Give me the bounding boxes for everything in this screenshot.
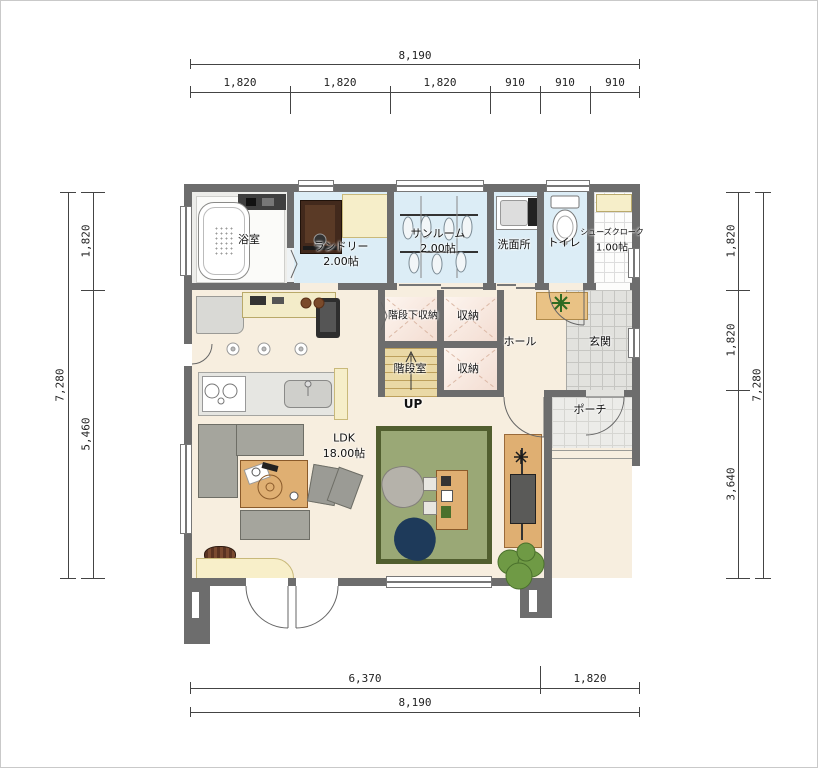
door-gap-kitchen-side <box>184 344 192 366</box>
window-shoecloset <box>628 248 640 278</box>
dimension-tick <box>290 86 291 114</box>
window-laundry <box>298 180 334 192</box>
wall-washroom-toilet <box>537 184 544 283</box>
dimension-tick <box>60 192 76 193</box>
sofa-bench <box>240 510 310 540</box>
tv <box>510 474 536 524</box>
dim-right-seg-2: 1,820 <box>725 308 738 372</box>
room-label-hall: ホール <box>504 333 537 349</box>
door-gap-laundry <box>300 283 338 290</box>
door-gap-terrace-a <box>246 578 288 586</box>
room-label-stair-room: 階段室 <box>394 360 427 376</box>
bathtub-drain-dots <box>214 226 234 256</box>
window-toilet <box>546 180 590 192</box>
wall-hall-bottom <box>437 390 504 397</box>
dimension-tick <box>190 707 191 717</box>
dimension-tick <box>726 390 750 391</box>
dim-line-bottom-segments <box>190 688 640 689</box>
stool <box>423 477 437 491</box>
dim-line-top-segments <box>190 92 640 93</box>
wall-sunroom-washroom <box>487 184 494 283</box>
door-gap-entrance <box>586 390 624 397</box>
dimension-tick <box>81 192 105 193</box>
island-end-panel <box>334 368 348 420</box>
dim-top-seg-6: 910 <box>605 76 625 89</box>
vanity-cabinet <box>528 198 537 226</box>
door-gap-washroom <box>496 283 535 290</box>
room-label-ldk: LDK <box>333 432 355 445</box>
room-size-ldk: 18.00帖 <box>323 445 366 461</box>
dim-left-seg-2: 5,460 <box>80 402 93 466</box>
stool <box>423 501 437 515</box>
dim-line-left-segments <box>93 192 94 578</box>
desk-item <box>441 476 451 486</box>
dimension-tick <box>639 707 640 717</box>
door-gap-shoecloset <box>596 283 630 290</box>
door-gap-terrace-b <box>296 578 338 586</box>
room-label-washroom: 洗面所 <box>498 236 531 252</box>
door-gap-bathroom <box>287 248 294 282</box>
dimension-tick <box>639 86 640 98</box>
dining-table <box>240 460 308 508</box>
window-ldk-west <box>180 444 192 534</box>
dim-top-seg-1: 1,820 <box>223 76 256 89</box>
dimension-tick <box>81 578 105 579</box>
dim-top-total: 8,190 <box>398 49 431 62</box>
refrigerator-inner <box>320 302 336 332</box>
dim-left-total: 7,280 <box>54 353 67 417</box>
window-ldk-south-sliding <box>386 576 492 588</box>
kitchen-cabinet <box>196 296 244 334</box>
wall-bottom <box>184 578 552 586</box>
dimension-tick <box>540 86 541 114</box>
dimension-tick <box>81 290 105 291</box>
room-label-entrance: 玄関 <box>589 333 611 349</box>
dimension-tick <box>590 86 591 114</box>
room-label-storage-lower: 収納 <box>457 360 479 376</box>
dim-top-seg-5: 910 <box>555 76 575 89</box>
room-label-laundry: ランドリー <box>314 238 369 254</box>
sofa-top <box>236 424 304 456</box>
dim-right-seg-1: 1,820 <box>725 209 738 273</box>
wall-ldk-east <box>544 390 552 586</box>
dim-line-bottom-total <box>190 712 640 713</box>
sw-corner-slot <box>192 592 199 618</box>
dimension-tick <box>755 578 771 579</box>
dimension-tick <box>540 666 541 694</box>
wall-stairblock-horizontal <box>378 341 504 348</box>
room-label-porch: ポーチ <box>574 401 607 417</box>
hall-cabinet <box>536 292 588 320</box>
door-gap-toilet <box>549 283 583 290</box>
laundry-counter <box>342 194 388 238</box>
window-sunroom <box>396 180 484 192</box>
porch-step-line <box>552 450 640 451</box>
dim-top-seg-3: 1,820 <box>423 76 456 89</box>
dim-bottom-total: 8,190 <box>398 696 431 709</box>
wall-entrance-porch <box>548 390 586 397</box>
stairs-up-label: UP <box>404 397 423 411</box>
room-label-bathroom: 浴室 <box>238 231 260 247</box>
sofa-left <box>198 424 238 498</box>
dimension-tick <box>726 290 750 291</box>
room-label-toilet: トイレ <box>548 234 581 250</box>
bathroom-counter-item <box>262 198 274 206</box>
vanity-basin <box>500 200 528 226</box>
room-label-understair-storage: 階段下収納 <box>388 307 438 322</box>
window-entrance <box>628 328 640 358</box>
dim-right-total: 7,280 <box>751 353 764 417</box>
dimension-tick <box>190 682 191 694</box>
room-label-shoe-closet: シューズクローク <box>580 227 644 238</box>
kitchen-appliance <box>272 297 284 304</box>
dimension-tick <box>639 59 640 69</box>
dimension-tick <box>390 86 391 114</box>
dim-bottom-seg-1: 6,370 <box>348 672 381 685</box>
dimension-tick <box>755 192 771 193</box>
wall-entrance-porch-stub <box>624 390 640 397</box>
dim-left-seg-1: 1,820 <box>80 209 93 273</box>
dimension-tick <box>190 86 191 98</box>
room-label-storage-upper: 収納 <box>457 307 479 323</box>
dim-line-right-segments <box>738 192 739 578</box>
dim-line-top-total <box>190 64 640 65</box>
kitchen-appliance <box>250 296 266 305</box>
dim-right-seg-3: 3,640 <box>725 452 738 516</box>
dimension-tick <box>726 578 750 579</box>
kitchen-sink <box>284 380 332 408</box>
room-size-shoe-closet: 1.00帖 <box>596 239 628 254</box>
dim-top-seg-4: 910 <box>505 76 525 89</box>
dimension-tick <box>639 682 640 694</box>
dimension-tick <box>726 192 750 193</box>
window-bathroom <box>180 206 192 276</box>
shoe-shelf <box>596 194 632 212</box>
wall-laundry-sunroom <box>387 184 394 283</box>
room-size-sunroom: 2.00帖 <box>420 240 456 256</box>
room-label-sunroom: サンルーム <box>411 225 466 241</box>
desk-item <box>441 506 451 518</box>
dimension-tick <box>60 578 76 579</box>
stove <box>202 376 246 412</box>
door-gap-sunroom <box>397 283 483 290</box>
room-size-laundry: 2.00帖 <box>323 253 359 269</box>
dim-bottom-seg-2: 1,820 <box>573 672 606 685</box>
bathroom-counter-item <box>246 198 256 206</box>
dim-line-left-total <box>68 192 69 578</box>
dimension-tick <box>490 86 491 114</box>
se-corner-slot <box>529 590 537 612</box>
desk-item <box>441 490 453 502</box>
door-gap-hall-ldk <box>504 390 544 397</box>
dim-top-seg-2: 1,820 <box>323 76 356 89</box>
porch-step-line <box>552 458 640 459</box>
dimension-tick <box>190 59 191 69</box>
